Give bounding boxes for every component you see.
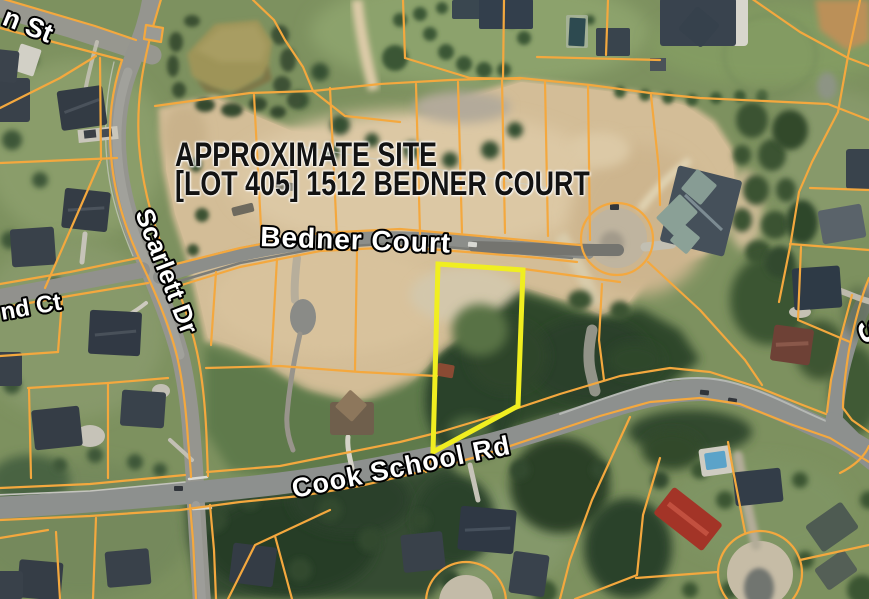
svg-text:[LOT 405] 1512 BEDNER COURT: [LOT 405] 1512 BEDNER COURT [175,165,590,203]
